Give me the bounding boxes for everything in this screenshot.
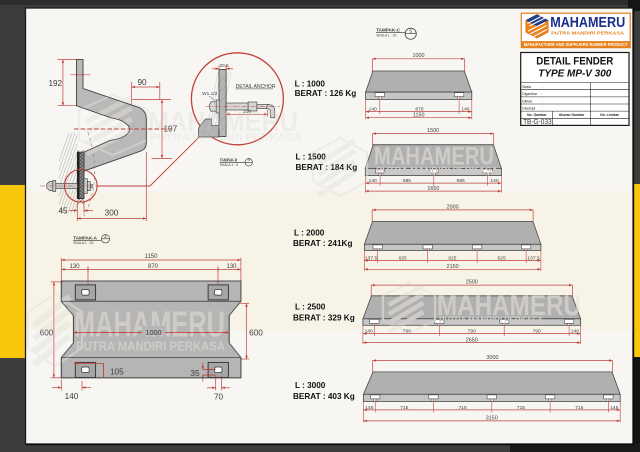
- svg-text:300: 300: [105, 209, 119, 218]
- svg-text:685: 685: [457, 178, 465, 184]
- svg-text:715: 715: [517, 405, 525, 411]
- svg-text:870: 870: [148, 264, 159, 270]
- svg-text:Ukuran Gambar: Ukuran Gambar: [559, 113, 585, 117]
- svg-text:Disetujui: Disetujui: [522, 106, 535, 110]
- svg-text:TAMPAK-A: TAMPAK-A: [73, 235, 97, 240]
- svg-text:1150: 1150: [145, 254, 159, 260]
- svg-text:TB-G-033: TB-G-033: [523, 117, 552, 126]
- svg-text:140: 140: [369, 178, 377, 184]
- svg-text:TAMPAK-D: TAMPAK-D: [220, 157, 238, 162]
- svg-text:45: 45: [58, 207, 68, 216]
- svg-text:Dilihat: Dilihat: [522, 99, 531, 103]
- svg-text:L : 3000: L : 3000: [295, 381, 326, 390]
- svg-text::: :: [542, 85, 543, 89]
- svg-text:Digambar: Digambar: [522, 92, 538, 96]
- svg-text:790: 790: [468, 329, 476, 335]
- svg-text:No. Lembar: No. Lembar: [600, 113, 619, 117]
- svg-text::: :: [542, 106, 543, 110]
- svg-text:W1.1/2: W1.1/2: [202, 91, 218, 97]
- svg-text:137.5: 137.5: [365, 255, 378, 261]
- svg-text:MAHAMERU: MAHAMERU: [550, 14, 625, 31]
- svg-text:1500: 1500: [427, 128, 439, 134]
- svg-text:105: 105: [110, 368, 124, 377]
- svg-text::: :: [542, 92, 543, 96]
- svg-text:2000: 2000: [447, 204, 459, 210]
- svg-text:20.5: 20.5: [219, 63, 229, 69]
- svg-text:L : 1000: L : 1000: [295, 79, 326, 88]
- svg-text:625: 625: [448, 255, 456, 261]
- svg-text:BERAT : 241Kg: BERAT : 241Kg: [293, 239, 352, 248]
- svg-text:5: 5: [409, 29, 412, 35]
- svg-text:130: 130: [226, 264, 237, 270]
- svg-text:SKALA 1 : 5: SKALA 1 : 5: [220, 163, 238, 167]
- svg-text:145: 145: [365, 405, 373, 411]
- svg-text:SKALA 1 : 20: SKALA 1 : 20: [376, 34, 396, 38]
- svg-text:1000: 1000: [413, 53, 425, 59]
- svg-text:140: 140: [571, 329, 579, 335]
- svg-text:70: 70: [214, 392, 224, 401]
- svg-text:PUTRA MANDIRI PERKASA: PUTRA MANDIRI PERKASA: [551, 30, 625, 35]
- svg-text:625: 625: [498, 255, 506, 261]
- svg-text:1650: 1650: [427, 186, 439, 192]
- svg-text:140: 140: [65, 392, 79, 401]
- svg-text:140: 140: [365, 329, 373, 335]
- svg-text:140: 140: [369, 107, 377, 113]
- svg-text:715: 715: [575, 405, 583, 411]
- svg-text:BERAT : 126 Kg: BERAT : 126 Kg: [295, 89, 357, 98]
- svg-text:MANUFACTURE AND SUPPLIERS RUBB: MANUFACTURE AND SUPPLIERS RUBBER PRODUCT: [524, 42, 628, 47]
- svg-text:140: 140: [490, 178, 498, 184]
- svg-text:715: 715: [459, 405, 467, 411]
- svg-text:137.5: 137.5: [527, 255, 540, 261]
- svg-text:685: 685: [403, 178, 411, 184]
- svg-text::: :: [542, 99, 543, 103]
- svg-text:BERAT : 329 Kg: BERAT : 329 Kg: [293, 313, 355, 322]
- svg-text:192: 192: [48, 79, 62, 88]
- svg-text:715: 715: [400, 405, 408, 411]
- svg-text:625: 625: [399, 255, 407, 261]
- svg-text:3150: 3150: [486, 416, 498, 422]
- svg-text:90: 90: [137, 78, 147, 87]
- svg-text:2150: 2150: [447, 264, 459, 270]
- svg-text:L : 2000: L : 2000: [294, 228, 325, 237]
- svg-text:SKALA 1 : 20: SKALA 1 : 20: [73, 241, 93, 245]
- svg-text:1000: 1000: [146, 328, 162, 337]
- svg-text:DETAIL FENDER: DETAIL FENDER: [536, 56, 613, 68]
- svg-text:2650: 2650: [466, 337, 478, 343]
- svg-text:790: 790: [533, 329, 541, 335]
- svg-text:TYPE MP-V 300: TYPE MP-V 300: [538, 69, 611, 80]
- svg-text:BERAT : 403 Kg: BERAT : 403 Kg: [293, 392, 355, 401]
- svg-text:2500: 2500: [466, 280, 478, 286]
- svg-text:600: 600: [249, 329, 263, 338]
- svg-text:3000: 3000: [487, 355, 499, 361]
- svg-text:TAMPAK-C: TAMPAK-C: [376, 28, 400, 33]
- svg-text:Skala: Skala: [522, 85, 531, 89]
- svg-text:35: 35: [190, 369, 200, 378]
- svg-text:L : 2500: L : 2500: [295, 302, 326, 311]
- svg-text:1150: 1150: [413, 113, 425, 119]
- svg-text:140: 140: [461, 107, 469, 113]
- svg-text:145: 145: [610, 405, 618, 411]
- svg-text:130: 130: [70, 264, 81, 270]
